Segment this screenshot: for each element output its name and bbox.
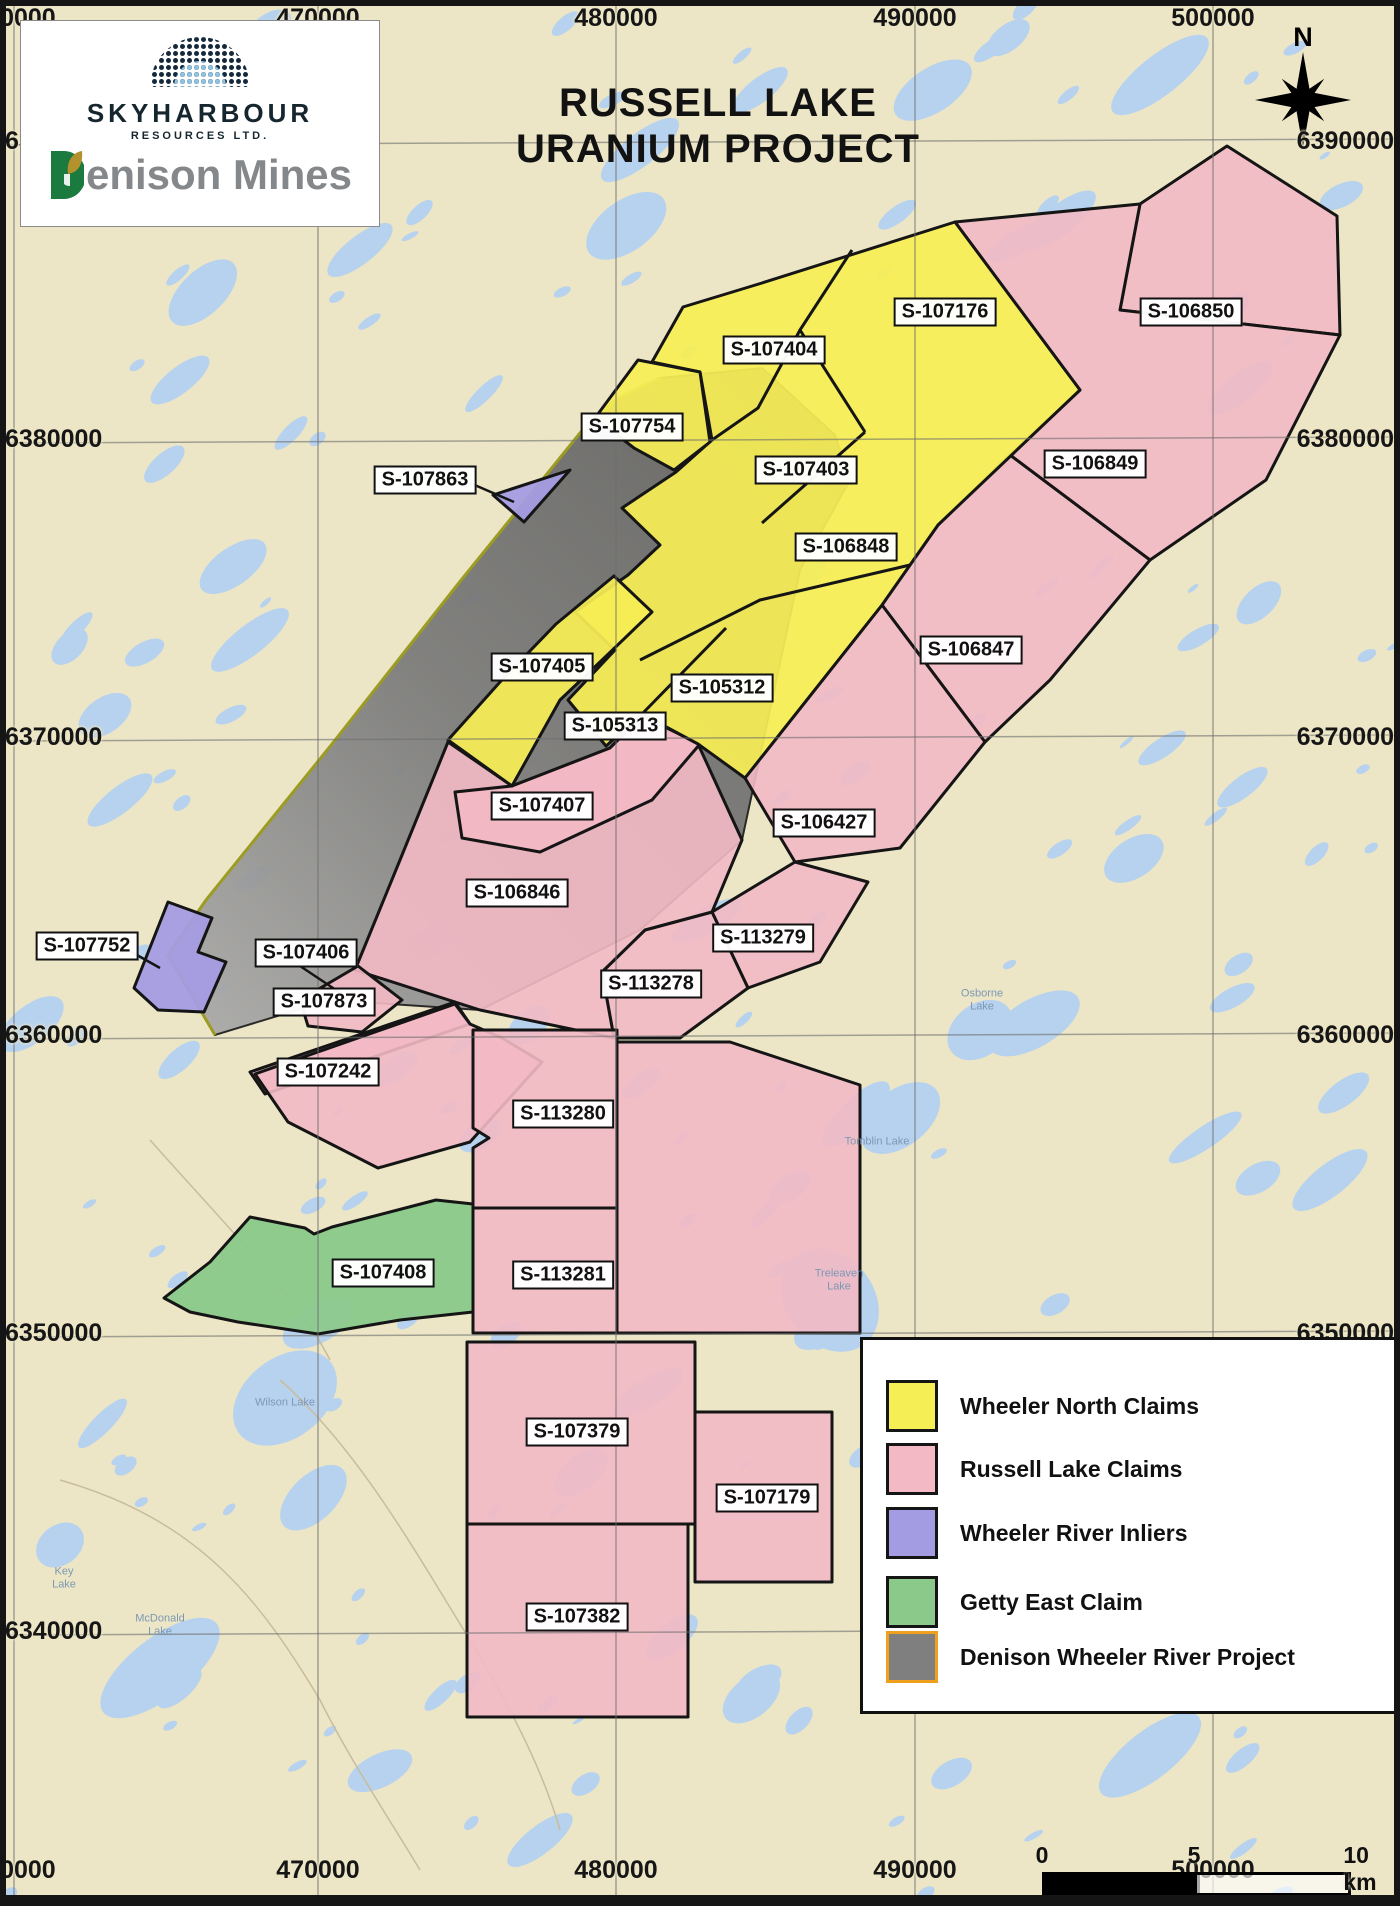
claim-label-s-107179: S-107179 [716,1484,819,1513]
legend-item-russell-lake-claims: Russell Lake Claims [886,1443,1182,1495]
legend-swatch-wheeler-river-inliers [886,1507,938,1559]
lake-name-wilson-lake: Wilson Lake [255,1397,315,1410]
skyharbour-subtitle: RESOURCES LTD. [21,130,379,142]
claim-label-s-113280: S-113280 [512,1100,614,1129]
claim-label-s-107754: S-107754 [581,413,684,442]
denison-d-icon [48,148,84,202]
legend-label: Russell Lake Claims [960,1456,1182,1483]
axis-label-left-6350000: 6350000 [5,1319,102,1348]
claim-label-s-107403: S-107403 [755,456,858,485]
legend-item-getty-east-claim: Getty East Claim [886,1576,1143,1628]
claim-label-s-107405: S-107405 [491,653,594,682]
claim-label-s-107873: S-107873 [273,988,376,1017]
skyharbour-dome-icon [144,29,256,91]
claim-label-s-106846: S-106846 [466,879,569,908]
claim-label-s-107382: S-107382 [526,1603,629,1632]
lake-name-tomblin-lake: Tomblin Lake [845,1136,910,1149]
north-label: N [1293,22,1313,53]
axis-label-bottom-490000: 490000 [873,1856,956,1885]
legend-swatch-getty-east-claim [886,1576,938,1628]
legend-label: Wheeler River Inliers [960,1520,1188,1547]
legend-item-denison-wheeler-river-project: Denison Wheeler River Project [886,1631,1295,1683]
axis-label-top-480000: 480000 [574,4,657,33]
claim-label-s-107242: S-107242 [277,1058,380,1087]
axis-label-right-6380000: 6380000 [1297,425,1394,454]
axis-label-right-6390000: 6390000 [1297,127,1394,156]
claim-label-s-106847: S-106847 [920,636,1023,665]
denison-mines-logo: enison Mines [21,148,379,202]
legend-swatch-denison-wheeler-river-project [886,1631,938,1683]
scalebar-tick-10-km: 10 km [1343,1842,1376,1896]
claim-label-s-107406: S-107406 [255,939,358,968]
legend-swatch-wheeler-north-claims [886,1380,938,1432]
claim-label-s-107176: S-107176 [894,298,997,327]
claim-label-s-105313: S-105313 [564,712,667,741]
lake-name-mcdonald-lake: McDonald Lake [135,1612,185,1637]
axis-label-left-6370000: 6370000 [5,723,102,752]
legend-box: Wheeler North ClaimsRussell Lake ClaimsW… [860,1337,1400,1714]
claim-label-s-107404: S-107404 [723,336,826,365]
scalebar-tick-0: 0 [1036,1842,1049,1869]
claim-label-s-106850: S-106850 [1140,298,1243,327]
scalebar-tick-5: 5 [1188,1842,1201,1869]
map-page: SKYHARBOUR RESOURCES LTD. enison Mines R… [0,0,1400,1906]
map-title-line2: URANIUM PROJECT [516,126,920,172]
lake-name-treleaven-lake: Treleaven Lake [815,1267,864,1292]
axis-label-top-500000: 500000 [1171,4,1254,33]
axis-label-right-6370000: 6370000 [1297,723,1394,752]
claim-label-s-107863: S-107863 [374,466,477,495]
legend-item-wheeler-river-inliers: Wheeler River Inliers [886,1507,1188,1559]
scalebar-segment-2 [1194,1872,1351,1896]
axis-label-bottom-460000: 460000 [0,1856,56,1885]
claim-label-s-105312: S-105312 [671,674,774,703]
claim-label-s-106849: S-106849 [1044,450,1147,479]
lake-name-osborne-lake: Osborne Lake [961,987,1003,1012]
axis-label-left-6340000: 6340000 [5,1617,102,1646]
legend-item-wheeler-north-claims: Wheeler North Claims [886,1380,1199,1432]
legend-label: Wheeler North Claims [960,1393,1199,1420]
logo-box: SKYHARBOUR RESOURCES LTD. enison Mines [20,20,380,227]
claim-label-s-106427: S-106427 [773,809,876,838]
skyharbour-name: SKYHARBOUR [21,98,379,129]
claim-label-s-106848: S-106848 [795,533,898,562]
lake-name-key-lake: Key Lake [52,1565,76,1590]
legend-label: Denison Wheeler River Project [960,1644,1295,1671]
claim-label-s-107407: S-107407 [491,792,594,821]
axis-label-left-6360000: 6360000 [5,1021,102,1050]
legend-swatch-russell-lake-claims [886,1443,938,1495]
claim-label-s-113278: S-113278 [600,970,702,999]
axis-label-left-6380000: 6380000 [5,425,102,454]
legend-label: Getty East Claim [960,1589,1143,1616]
claim-label-s-107752: S-107752 [36,932,139,961]
scalebar-segment-1 [1042,1872,1200,1896]
axis-label-top-490000: 490000 [873,4,956,33]
denison-mines-text: enison Mines [86,151,352,199]
claim-label-s-113281: S-113281 [512,1261,614,1290]
map-title: RUSSELL LAKE URANIUM PROJECT [516,80,920,172]
axis-label-bottom-480000: 480000 [574,1856,657,1885]
map-title-line1: RUSSELL LAKE [516,80,920,126]
map-overlay: SKYHARBOUR RESOURCES LTD. enison Mines R… [0,0,1400,1906]
claim-label-s-107379: S-107379 [526,1418,629,1447]
axis-label-bottom-470000: 470000 [276,1856,359,1885]
claim-label-s-107408: S-107408 [332,1259,435,1288]
axis-label-right-6360000: 6360000 [1297,1021,1394,1050]
claim-label-s-113279: S-113279 [712,924,814,953]
